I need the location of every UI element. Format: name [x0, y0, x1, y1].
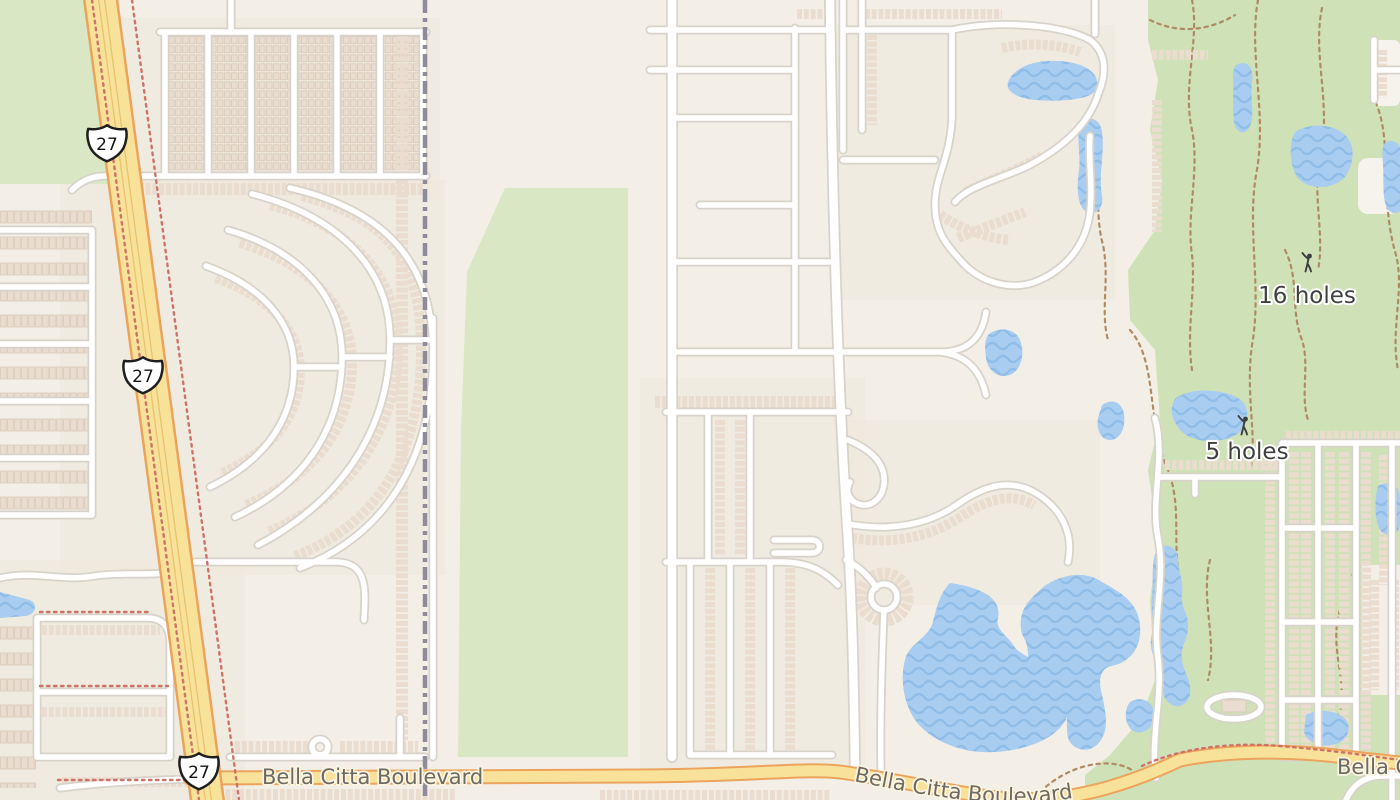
bella-citta-boulevard-label-left: Bella Citta Boulevard — [262, 765, 483, 789]
shield-number: 27 — [188, 763, 210, 783]
pond — [1291, 126, 1353, 187]
central-green-field — [458, 188, 628, 757]
oval-loop-building — [1222, 700, 1246, 712]
pond — [1126, 699, 1155, 732]
golf-16-holes-label: 16 holes — [1258, 283, 1356, 309]
shield-number: 27 — [132, 367, 154, 387]
pond — [985, 329, 1022, 376]
map-canvas[interactable]: 27 27 27 16 holes 5 holes Bella Citta Bo… — [0, 0, 1400, 800]
pond — [1382, 141, 1400, 213]
shield-number: 27 — [96, 135, 118, 155]
map-svg: 27 27 27 16 holes 5 holes Bella Citta Bo… — [0, 0, 1400, 800]
golf-5-holes-label: 5 holes — [1205, 439, 1288, 465]
pond — [1233, 63, 1252, 132]
bella-citta-label-right: Bella Citta — [1337, 755, 1400, 779]
